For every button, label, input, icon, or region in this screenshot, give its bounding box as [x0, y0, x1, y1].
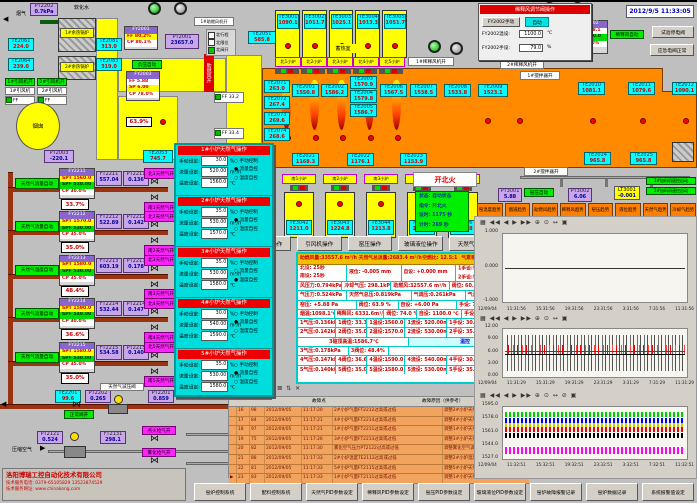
emergency-valve-button[interactable]: 应急电阀正常 [650, 44, 694, 56]
valve-open-label-south: 南5天然气开 [144, 376, 178, 387]
sensor-bottom[interactable]: TE2024965.8 [584, 152, 611, 165]
port-group: 北3小炉 [327, 57, 351, 74]
sensor-crown[interactable]: TE20031570.9 [350, 76, 377, 89]
y-tick: 3.00 [474, 361, 498, 366]
fy2002-auto-button[interactable]: 自动 [525, 17, 549, 27]
aux-fan-freq-1[interactable]: FF 33.2 [214, 92, 244, 103]
air-arrow-icon: ▶ [40, 444, 45, 452]
damper-position[interactable]: 63.9% [126, 117, 152, 127]
gas-reducer-label: 天然气减压阀 [100, 383, 144, 391]
air-pipe-branch [186, 433, 232, 436]
id-fan1-status: 1#引风机开 [5, 78, 35, 86]
port-label[interactable]: 北3小炉 [327, 57, 353, 67]
id-fan2-label: 2#引风机 [37, 87, 67, 95]
x-tick: 7:32:51 [649, 462, 665, 467]
y-tick: 0.000 [474, 264, 498, 269]
regenerator-label: 蓄热室 [330, 44, 356, 53]
sensor-crown[interactable]: TE20091523.1 [478, 84, 508, 97]
fault-point: 2#小炉气量FT2212过高或过低 [333, 407, 443, 416]
fy2002-hand-field[interactable]: 79.0 [519, 44, 543, 52]
radio-manual-control[interactable]: ○ 手动控制 [234, 362, 270, 370]
id-fan1-label: 1#引风机 [5, 87, 35, 95]
sensor-bottom[interactable]: TE20221176.1 [347, 153, 374, 166]
sensor-crown[interactable]: TE20071538.5 [410, 84, 437, 97]
check-row[interactable]: 北限位 [208, 39, 234, 47]
sensor-pt2001[interactable]: PT200123657.0 [165, 34, 199, 49]
y-tick: 9.00 [474, 336, 498, 341]
fire-north-button[interactable]: 开北火 [413, 172, 477, 187]
sensor-pt2202-top[interactable]: PT22020.7kPa [30, 3, 58, 16]
ignition-air-open-label: 点火枪气开 [142, 426, 176, 435]
burner-off-indicator [340, 69, 345, 73]
fan-icon [428, 40, 441, 53]
chart2-xlabels: 12/09/04 11:31:29 15:31:29 19:31:29 23:3… [478, 380, 694, 385]
burner-indicators [290, 185, 308, 191]
x-tick: 7:31:29 [649, 380, 665, 385]
fan-icon [148, 2, 161, 15]
air-valve-icon[interactable] [70, 432, 79, 441]
valve-position[interactable]: 48.4% [61, 286, 89, 297]
south-port-group: 南1小炉 TE30421211.0 [282, 174, 316, 238]
row-index: 19 [237, 436, 250, 445]
operation-button[interactable]: 窑压操作 [348, 236, 393, 251]
valve-icon[interactable]: ⋈ [150, 178, 159, 187]
row-time: 11:17:21 [302, 426, 333, 435]
burner-off-indicator [300, 186, 305, 190]
x-tick: 19:31:56 [565, 306, 584, 311]
radio-flow-control[interactable]: ● 流量自控 [234, 370, 270, 378]
gas-controller[interactable]: FY2211SPT 1560.0SPF 520.00CP 30.0% [59, 168, 95, 199]
flue-gas-arrow-icon: ◀ [3, 15, 8, 23]
chart1-toolbar[interactable]: ▦ ◀◀ ◀ ▶ ▶▶ ⊕ ⊙ ↔ ▣ [480, 219, 568, 226]
valve-icon[interactable]: ⋈ [150, 265, 159, 274]
south-port-group: 南3小炉 TE30441213.8 [364, 174, 398, 238]
flow-set-field[interactable]: 530.00 [201, 218, 228, 228]
bottom-nav-button[interactable]: 窑炉控制系统 [194, 483, 246, 501]
sensor-te2083[interactable]: TE2083319.0 [96, 58, 122, 71]
bottom-nav-button[interactable]: 天然气PID参数设定 [306, 483, 358, 501]
radio-icon: ○ [234, 227, 238, 232]
flow-set-field[interactable]: 530.00 [201, 371, 228, 381]
row-index: 18 [237, 426, 250, 435]
operation-buttons: 稀释风操作 引风机操作 窑压操作 玻璃液位操作 天然气操作 [246, 236, 494, 251]
sensor-te2051[interactable]: TE2051585.8 [248, 31, 276, 44]
burner-off-indicator [314, 69, 319, 73]
manual-set-field[interactable]: 35.0 [201, 360, 228, 370]
south-port-group: 南2小炉 TE30431224.8 [323, 174, 357, 238]
burner-on-indicator [293, 186, 298, 190]
trend-button[interactable]: 冷却气趋势 [670, 203, 696, 217]
gas-train-row: 天然气流量自动 FY2215SPT 1580.0SPF 530.00CP 35.… [0, 342, 176, 385]
nozzle-icon [605, 179, 608, 187]
gas-controller[interactable]: FY2214SPT 1590.0SPF 540.00CP 30.0% [59, 298, 95, 329]
bottom-nav-button[interactable]: 窑压PID参数设定 [418, 483, 470, 501]
row-code: 81 [250, 465, 265, 474]
sensor-crown[interactable]: TE20051586.7 [350, 104, 377, 117]
radio-manual-control[interactable]: ○ 手动控制 [234, 311, 270, 319]
popup-section-title: 1#小炉天然气操作 [178, 146, 270, 155]
indicator-dot [590, 118, 596, 124]
row-time: 11:17:21 [302, 417, 333, 426]
row-code: 75 [250, 436, 265, 445]
sensor-te2053[interactable]: TE2053745.7 [143, 150, 173, 163]
bottom-nav-button[interactable]: 稀释风PID参数设定 [362, 483, 414, 501]
port-label[interactable]: 北1小炉 [275, 57, 301, 67]
boiler-1-label: 1#余热锅炉 [60, 28, 94, 38]
port-group: 北1小炉 [275, 57, 299, 74]
sensor-crown[interactable]: TE20081533.8 [444, 84, 471, 97]
port-label[interactable]: 南3小炉 [364, 174, 398, 184]
company-web[interactable]: 技术服务网址: www.chinakong.com [6, 487, 182, 494]
trend-button[interactable]: 液位趋势 [615, 203, 641, 217]
bottom-nav-button[interactable]: 玻璃液位PID参数设定 [474, 483, 526, 501]
radio-temp-control[interactable]: ○ 温度自控 [234, 175, 270, 183]
company-name: 洛阳博瑞工控自动化技术有限公司 [6, 471, 182, 481]
sensor-bottom[interactable]: TE2025965.8 [630, 152, 657, 165]
control-mode-radios: ○ 手动控制 ● 流量自控 ○ 温度自控 [234, 209, 270, 234]
radio-manual-control[interactable]: ○ 手动控制 [234, 209, 270, 217]
radio-icon: ○ [234, 329, 238, 334]
popup-section-title: 3#小炉天然气操作 [178, 248, 270, 257]
feeder1-auto-label: 1#加料机速控自动 [646, 177, 696, 185]
row-date: 2012/09/05 [265, 465, 302, 474]
chart3-ylabels: 1595.0 1578.0 1561.0 1544.0 1527.0 [474, 402, 500, 460]
port-label[interactable]: 北4小炉 [353, 57, 379, 67]
radio-temp-control[interactable]: ● 温度自控 [234, 277, 270, 285]
x-tick: 11:32:51 [675, 462, 694, 467]
x-tick: 11:31:56 [507, 306, 526, 311]
manual-set-field[interactable]: 30.0 [201, 156, 228, 166]
sensor-left[interactable]: TE2071263.0 [264, 80, 290, 93]
burner-off-indicator [288, 69, 293, 73]
sensor-bottom[interactable]: TE20231153.9 [400, 153, 427, 166]
scada-screen: 烟气 ◀ PT22020.7kPa 软化水 1#余热锅炉 2#余热锅炉 TE20… [0, 0, 697, 503]
valve-icon[interactable]: ⋈ [150, 308, 159, 317]
row-index: 21 [237, 455, 250, 464]
popup-section: 3#小炉天然气操作 手动设定: 35.0 % 流量设定: 530.00 m³/h… [176, 248, 272, 298]
gas-flow-sensor[interactable]: FT2211557.04 [96, 171, 122, 186]
trend-button[interactable]: 助燃风趋势 [532, 203, 558, 217]
row-code: 88 [250, 455, 265, 464]
sensor-left[interactable]: TE2072267.4 [264, 96, 290, 109]
flow-set-field[interactable]: 530.00 [201, 269, 228, 279]
valve-open-label-north: 北1天然气开 [144, 168, 178, 179]
check-row[interactable]: 北行程 [208, 31, 234, 39]
reducer-valve-icon[interactable] [114, 395, 123, 404]
burner-on-indicator [334, 186, 339, 190]
sensor-te2081[interactable]: TE2081313.0 [96, 38, 122, 51]
popup-section: 2#小炉天然气操作 手动设定: 35.0 % 流量设定: 530.00 m³/h… [176, 197, 272, 247]
radio-manual-control[interactable]: ○ 手动控制 [234, 158, 270, 166]
valve-open-label-north: 北5天然气开 [144, 342, 178, 353]
controller-fy2001[interactable]: FY2001FF 80.2%CP 80.1% [124, 26, 158, 50]
bottom-nav-button[interactable]: 窑炉故障报警记录 [530, 483, 582, 501]
fault-point: 5#小炉气量FT2115过高或过低 [333, 465, 443, 474]
burner-indicators [353, 68, 377, 74]
fy2002-temp-label: FY2002温设: [482, 31, 510, 37]
row-date: 2012/09/05 [265, 417, 302, 426]
trend-button[interactable]: 窑压趋势 [588, 203, 614, 217]
valve-position[interactable]: 33.7% [61, 199, 89, 210]
chart1-flat-line [505, 268, 685, 269]
sensor-pt3002[interactable]: PT30026.06 [568, 188, 592, 202]
fy2002-manual-button[interactable]: FY2002手动 [482, 17, 520, 27]
chart3-toolbar[interactable]: ▦ ◀◀ ◀ ▶ ▶▶ ⊕ ⊙ ↔ ⊘ ▣ [480, 392, 577, 399]
row-date: 2012/09/05 [265, 436, 302, 445]
row-code: 82 [250, 445, 265, 454]
x-tick: 23:31:56 [594, 306, 613, 311]
valve-open-label-north: 北2天然气开 [144, 211, 178, 222]
sensor-crown[interactable]: TE20061567.5 [380, 84, 407, 97]
temp-set-field[interactable]: 1580.0 [201, 382, 228, 392]
chart2-toolbar[interactable]: ▦ ◀◀ ◀ ▶ ▶▶ ⊕ ⊙ ↔ ▣ [480, 315, 568, 322]
kiln-pressure-auto-label: 窑压自动 [524, 188, 554, 197]
regenerator-chamber[interactable]: TE30421211.0 [284, 192, 314, 238]
sensor-pt2202[interactable]: PT22020.265 [85, 390, 111, 403]
sensor-te2064[interactable]: TE2064239.0 [8, 58, 34, 71]
x-tick: 3:32:51 [623, 462, 639, 467]
radio-temp-control[interactable]: ○ 温度自控 [234, 379, 270, 387]
burner-off-indicator [392, 69, 397, 73]
sensor-left[interactable]: TE2073269.6 [264, 112, 290, 125]
status-line: 指令: 开北火 [419, 202, 468, 212]
x-tick: 12/09/04 [478, 306, 497, 311]
burner-indicators [275, 68, 299, 74]
sensor-crown[interactable]: TE20041579.8 [350, 90, 377, 103]
gas-controller[interactable]: FY2215SPT 1580.0SPF 530.00CP 35.0% [59, 342, 95, 373]
sensor-pt2121[interactable]: PT21210.524 [37, 431, 63, 444]
temp-set-field[interactable]: 1560.0 [201, 178, 228, 188]
gas-controller[interactable]: FY2213SPT 1580.0SPF 530.00CP 35.0% [59, 255, 95, 286]
datetime-display: 2012/9/5 11:33:05 [626, 5, 694, 18]
fy2002-hand-label: FY2002手设: [482, 45, 510, 51]
temp-set-field[interactable]: 1570.0 [201, 229, 228, 239]
radio-icon: ● [234, 278, 238, 283]
sensor-te2061[interactable]: TE2061224.0 [8, 38, 34, 51]
top-border [0, 0, 697, 2]
chart2-plot[interactable] [502, 328, 688, 378]
gas-flow-sensor[interactable]: FT2212522.89 [96, 214, 122, 229]
dilution-popup: 稀释风调节阀操作 FY2002手动 自动 FY2002温设: 1100.0 ℃ … [478, 3, 592, 61]
indicator-dot [392, 43, 398, 49]
radio-temp-control[interactable]: ○ 温度自控 [234, 226, 270, 234]
regenerator-chamber[interactable]: TE30041013.3 [355, 10, 380, 58]
valve-icon[interactable]: ⋈ [72, 401, 81, 410]
regenerator-chamber[interactable]: TE30051051.7 [382, 10, 407, 58]
valve-icon[interactable]: ⋈ [150, 221, 159, 230]
fy2002-temp-field[interactable]: 1100.0 [519, 30, 543, 38]
x-tick: 19:32:51 [565, 462, 584, 467]
popup-section-title: 2#小炉天然气操作 [178, 197, 270, 206]
chart3-xlabels: 12/09/04 11:32:51 15:32:51 19:32:51 23:3… [478, 462, 694, 467]
bottom-nav-button[interactable]: 窑炉数据记录 [586, 483, 638, 501]
gas-main-arrow-icon: ◀ [1, 400, 6, 408]
row-date: 2012/09/05 [265, 445, 302, 454]
nozzle-icon [560, 179, 563, 187]
test-valve-button[interactable]: 试验停电阀 [652, 26, 694, 38]
radio-flow-control[interactable]: ● 流量自控 [234, 319, 270, 327]
valve-position[interactable]: 35.0% [61, 373, 89, 384]
manual-set-field[interactable]: 30.0 [201, 309, 228, 319]
chart1-plot[interactable] [502, 233, 688, 303]
indicator-dot [312, 43, 318, 49]
row-time: 11:17:30 [302, 445, 333, 454]
burner-indicators [379, 68, 403, 74]
feeder2-auto-label: 2#加料机速控自动 [646, 187, 696, 195]
y-tick: 0.00 [474, 373, 498, 378]
operation-button[interactable]: 引风机操作 [297, 236, 342, 251]
manual-set-field[interactable]: 35.0 [201, 207, 228, 217]
row-date: 2012/09/05 [265, 474, 302, 483]
row-marker [229, 407, 237, 416]
gas-flow-sensor[interactable]: FT2213603.19 [96, 258, 122, 273]
flue-gas-label: 烟气 [16, 10, 26, 17]
bottom-nav-button[interactable]: 系统报警值设定 [642, 483, 694, 501]
flow-set-field[interactable]: 540.00 [201, 320, 228, 330]
vacuum-auto-label: 负压自动 [132, 60, 162, 69]
trend-button[interactable]: 稀释风趋势 [560, 203, 586, 217]
indicator-dot [517, 118, 523, 124]
bottom-buttons: 窑炉控制系统 配料控制系统 天然气PID参数设定 稀释风PID参数设定 窑压PI… [194, 483, 694, 501]
port-label[interactable]: 南1小炉 [282, 174, 316, 184]
port-label[interactable]: 北5小炉 [379, 57, 405, 67]
gas-train-row: 天然气流量自动 FY2212SPT 1570.0SPF 530.00CP 35.… [0, 211, 176, 254]
manual-set-field[interactable]: 35.0 [201, 258, 228, 268]
check-row[interactable]: 北阀开 [208, 46, 234, 54]
port-label[interactable]: 南2小炉 [323, 174, 357, 184]
gas-auto-label: 天然气流量自动 [15, 178, 59, 189]
port-label[interactable]: 北2小炉 [301, 57, 327, 67]
id-fan2-status: 2#引风机开 [37, 78, 67, 86]
popup-section-title: 5#小炉天然气操作 [178, 350, 270, 359]
series-green [505, 412, 685, 417]
gas-auto-label: 天然气流量自动 [15, 308, 59, 319]
radio-icon: ● [234, 167, 238, 172]
gas-setting-popup: 1#小炉天然气操作 手动设定: 30.0 % 流量设定: 520.00 m³/h… [174, 143, 274, 397]
burner-on-indicator [307, 69, 312, 73]
control-mode-radios: ○ 手动控制 ○ 流量自控 ● 温度自控 [234, 260, 270, 285]
y-tick: 1595.0 [474, 402, 498, 407]
regenerator-chamber[interactable]: TE30431224.8 [325, 192, 355, 238]
sensor-left[interactable]: TE2074268.6 [264, 128, 290, 141]
chart2-black-line [505, 354, 685, 355]
sensor-pt3001[interactable]: PT30015.88 [498, 188, 522, 202]
sensor-pt2201[interactable]: PT22010.859 [148, 390, 174, 403]
series-magenta [505, 447, 685, 454]
controller-fy2003[interactable]: FY2003FF 5.88SP 6.00CP 78.0% [126, 71, 160, 101]
indicator-dot [485, 118, 491, 124]
sensor-ft2131[interactable]: FT2131298.1 [100, 431, 126, 444]
y-tick: 1544.0 [474, 442, 498, 447]
temp-set-field[interactable]: 1590.0 [201, 331, 228, 341]
x-tick: 11:31:29 [507, 380, 526, 385]
status-line: 计时: 269 秒 [419, 221, 468, 231]
row-code: 83 [250, 474, 265, 483]
regenerator-chamber[interactable]: TE30011090.1 [275, 10, 300, 58]
company-info: 洛阳博瑞工控自动化技术有限公司 技术服务电话: 0379-65105829 13… [2, 468, 186, 501]
sensor-pt2003[interactable]: PT2003-220.1 [44, 150, 74, 163]
gas-controller[interactable]: FY2212SPT 1570.0SPF 530.00CP 35.0% [59, 211, 95, 242]
row-time: 11:17:33 [302, 455, 333, 464]
gas-train-row: 天然气流量自动 FY2211SPT 1560.0SPF 520.00CP 30.… [0, 168, 176, 211]
row-marker [229, 465, 237, 474]
flow-set-field[interactable]: 520.00 [201, 167, 228, 177]
operation-button[interactable]: 玻璃液位操作 [398, 236, 443, 251]
radio-manual-control[interactable]: ○ 手动控制 [234, 260, 270, 268]
series-red [505, 427, 685, 432]
sensor-right[interactable]: TE20111079.6 [628, 82, 655, 95]
control-mode-radios: ○ 手动控制 ● 流量自控 ○ 温度自控 [234, 362, 270, 387]
sensor-crown[interactable]: TE20021586.2 [321, 84, 348, 97]
gas-flow-sensor[interactable]: FT2214532.44 [96, 301, 122, 316]
radio-icon: ○ [234, 261, 238, 266]
trend-button[interactable]: 窑温度趋势 [477, 203, 503, 217]
trend-button[interactable]: 天然气趋势 [643, 203, 669, 217]
burner-on-indicator [375, 186, 380, 190]
soft-water-label: 软化水 [74, 4, 89, 11]
chart3-plot[interactable] [502, 406, 688, 460]
bottom-nav-button[interactable]: 配料控制系统 [250, 483, 302, 501]
aux-fan-freq-2[interactable]: FF 33.4 [214, 128, 244, 139]
trend-button[interactable]: 烟道趋势 [505, 203, 531, 217]
dilution-fan2-label: 2#稀释风机开 [500, 60, 544, 69]
valve-position[interactable]: 36.6% [61, 329, 89, 340]
chimney: 烟囱 [16, 102, 60, 150]
sensor-lt3001[interactable]: LT3001-0.001 [614, 186, 640, 200]
sensor-right[interactable]: TE20121090.1 [672, 82, 697, 95]
valve-open-label-north: 北4天然气开 [144, 298, 178, 309]
air-pipe-branch [186, 462, 232, 465]
sensor-bottom[interactable]: TE20211168.3 [292, 153, 319, 166]
radio-icon: ○ [234, 363, 238, 368]
radio-flow-control[interactable]: ● 流量自控 [234, 217, 270, 225]
regenerator-chamber[interactable]: TE30441213.8 [366, 192, 396, 238]
radio-flow-control[interactable]: ○ 流量自控 [234, 268, 270, 276]
valve-icon[interactable]: ⋈ [150, 352, 159, 361]
sensor-right[interactable]: TE20101081.1 [578, 82, 605, 95]
cooler-unit [672, 142, 694, 162]
gas-flow-sensor[interactable]: FT2215534.58 [96, 345, 122, 360]
burner-on-indicator [333, 69, 338, 73]
temp-set-field[interactable]: 1580.0 [201, 280, 228, 290]
x-tick: 23:31:29 [594, 380, 613, 385]
control-mode-radios: ○ 手动控制 ● 流量自控 ○ 温度自控 [234, 158, 270, 183]
row-marker: ▶ [229, 474, 237, 483]
radio-flow-control[interactable]: ● 流量自控 [234, 166, 270, 174]
valve-open-label-north: 北3天然气开 [144, 255, 178, 266]
checkbox-icon [208, 39, 215, 46]
regenerator-chamber[interactable]: TE30021011.7 [302, 10, 327, 58]
reducer-unit [108, 404, 128, 414]
valve-icon[interactable]: ⋈ [150, 457, 159, 466]
valve-position[interactable]: 35.0% [61, 242, 89, 253]
row-time: 11:17:33 [302, 474, 333, 483]
sensor-crown[interactable]: TE20011550.8 [292, 84, 319, 97]
north-checks: 北行程 北限位 北阀开 [206, 29, 236, 56]
row-marker [229, 417, 237, 426]
valve-icon[interactable]: ⋈ [150, 435, 159, 444]
radio-icon: ○ [234, 269, 238, 274]
port-group: 北5小炉 [379, 57, 403, 74]
radio-icon: ○ [234, 312, 238, 317]
row-index: 23 [237, 474, 250, 483]
row-code: 84 [250, 417, 265, 426]
radio-temp-control[interactable]: ○ 温度自控 [234, 328, 270, 336]
radio-icon: ● [234, 320, 238, 325]
burner-on-indicator [281, 69, 286, 73]
comb-air-open-label: 助燃风开 [204, 54, 214, 92]
radio-icon: ○ [234, 159, 238, 164]
